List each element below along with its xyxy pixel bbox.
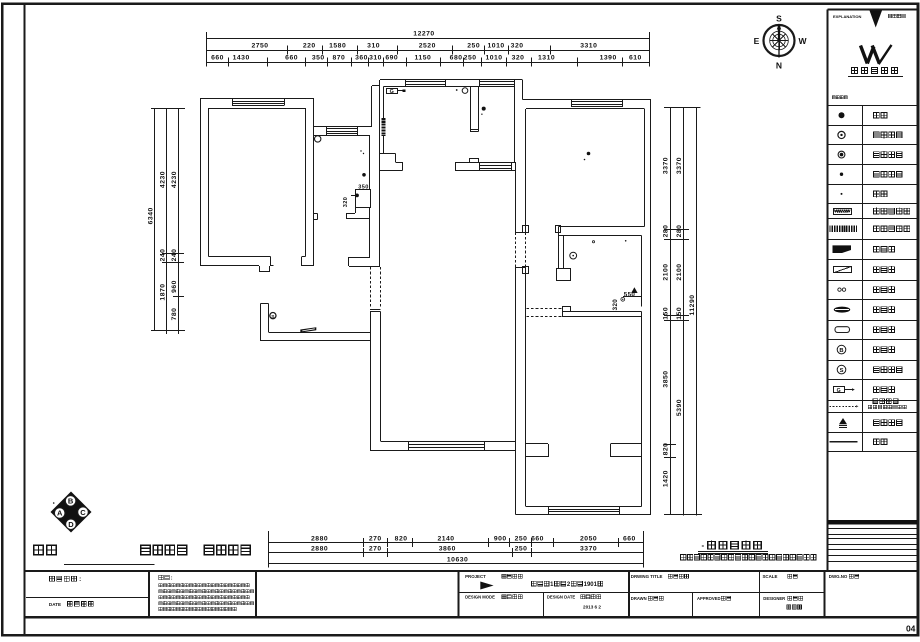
svg-text:3860: 3860 bbox=[439, 546, 456, 553]
svg-text:1010: 1010 bbox=[488, 43, 505, 50]
svg-text:870: 870 bbox=[332, 55, 345, 62]
svg-text:S: S bbox=[840, 368, 844, 374]
svg-text:250: 250 bbox=[464, 55, 477, 62]
svg-text:660: 660 bbox=[531, 535, 544, 542]
svg-text:280: 280 bbox=[676, 225, 683, 238]
svg-text:680: 680 bbox=[450, 55, 463, 62]
svg-text:DATE: DATE bbox=[49, 602, 61, 607]
svg-text:DWG.NO: DWG.NO bbox=[829, 574, 848, 579]
svg-text:1580: 1580 bbox=[329, 43, 346, 50]
svg-text:320: 320 bbox=[511, 43, 524, 50]
svg-text:2100: 2100 bbox=[676, 263, 683, 280]
svg-text:3310: 3310 bbox=[580, 43, 597, 50]
svg-text::: : bbox=[171, 575, 173, 581]
svg-text:280: 280 bbox=[662, 225, 669, 238]
svg-text:PROJECT: PROJECT bbox=[465, 574, 486, 579]
svg-text:3370: 3370 bbox=[662, 157, 669, 174]
svg-text:250: 250 bbox=[515, 535, 528, 542]
svg-text:250: 250 bbox=[467, 43, 480, 50]
svg-text:12270: 12270 bbox=[413, 31, 434, 38]
svg-text:1420: 1420 bbox=[662, 470, 669, 487]
svg-text:960: 960 bbox=[171, 280, 178, 293]
svg-text:2140: 2140 bbox=[437, 535, 454, 542]
svg-text:S: S bbox=[776, 14, 782, 24]
svg-text:900: 900 bbox=[494, 535, 507, 542]
svg-text:-: - bbox=[702, 541, 705, 550]
svg-text:11290: 11290 bbox=[689, 294, 696, 315]
svg-text:270: 270 bbox=[369, 535, 382, 542]
svg-text:B: B bbox=[839, 348, 843, 354]
svg-text:1390: 1390 bbox=[600, 55, 617, 62]
svg-text:DESIGN MODE: DESIGN MODE bbox=[465, 594, 495, 599]
svg-text:D: D bbox=[68, 520, 74, 529]
svg-text:2750: 2750 bbox=[251, 43, 268, 50]
svg-text:660: 660 bbox=[623, 535, 636, 542]
svg-text:610: 610 bbox=[629, 55, 642, 62]
svg-text:820: 820 bbox=[662, 443, 669, 456]
svg-text:310: 310 bbox=[369, 55, 382, 62]
svg-text:1901: 1901 bbox=[584, 582, 598, 588]
svg-text:A: A bbox=[57, 509, 63, 518]
svg-text:360: 360 bbox=[355, 55, 368, 62]
svg-text:310: 310 bbox=[367, 43, 380, 50]
svg-text:350: 350 bbox=[358, 184, 369, 190]
svg-text:G: G bbox=[837, 388, 841, 394]
svg-text:320: 320 bbox=[512, 55, 525, 62]
svg-text:DRAWN: DRAWN bbox=[631, 596, 647, 601]
svg-text:660: 660 bbox=[285, 55, 298, 62]
svg-text:320: 320 bbox=[612, 299, 619, 311]
svg-text:5390: 5390 bbox=[676, 399, 683, 416]
svg-text:2100: 2100 bbox=[662, 263, 669, 280]
svg-text:DESIGNER: DESIGNER bbox=[763, 596, 785, 601]
svg-text:C: C bbox=[80, 508, 86, 517]
svg-text:270: 270 bbox=[369, 546, 382, 553]
svg-text:SCALE: SCALE bbox=[763, 574, 778, 579]
svg-text:660: 660 bbox=[211, 55, 224, 62]
svg-text:2050: 2050 bbox=[580, 535, 597, 542]
svg-text:B: B bbox=[68, 497, 74, 506]
svg-text:150: 150 bbox=[676, 307, 683, 320]
svg-text:DRWING TITLE: DRWING TITLE bbox=[631, 574, 663, 579]
svg-text:2880: 2880 bbox=[311, 535, 328, 542]
svg-text:3370: 3370 bbox=[676, 157, 683, 174]
svg-text:E: E bbox=[754, 36, 760, 46]
svg-text:10630: 10630 bbox=[447, 556, 468, 563]
svg-text:N: N bbox=[776, 61, 782, 71]
svg-text:6340: 6340 bbox=[148, 207, 155, 224]
svg-text:820: 820 bbox=[395, 535, 408, 542]
svg-text:250: 250 bbox=[515, 546, 528, 553]
svg-text:04: 04 bbox=[906, 623, 916, 633]
svg-text:G: G bbox=[390, 89, 394, 95]
svg-text:4230: 4230 bbox=[159, 171, 166, 188]
svg-text:690: 690 bbox=[385, 55, 398, 62]
svg-text:3370: 3370 bbox=[580, 546, 597, 553]
svg-text:240: 240 bbox=[171, 249, 178, 262]
svg-text:320: 320 bbox=[343, 197, 349, 208]
svg-text:350: 350 bbox=[312, 55, 325, 62]
svg-text:1150: 1150 bbox=[415, 55, 432, 62]
svg-text:2013 6 2: 2013 6 2 bbox=[583, 605, 601, 610]
svg-text:780: 780 bbox=[171, 308, 178, 321]
svg-text:4230: 4230 bbox=[171, 171, 178, 188]
svg-text:150: 150 bbox=[662, 307, 669, 320]
svg-text:1430: 1430 bbox=[233, 55, 250, 62]
svg-text:240: 240 bbox=[159, 249, 166, 262]
svg-text:1010: 1010 bbox=[485, 55, 502, 62]
svg-text:3850: 3850 bbox=[662, 370, 669, 387]
svg-text:1870: 1870 bbox=[159, 283, 166, 300]
svg-text:W: W bbox=[798, 36, 807, 46]
svg-text:EXPLANATION: EXPLANATION bbox=[833, 14, 861, 19]
svg-text:DESIGN DATE: DESIGN DATE bbox=[547, 594, 576, 599]
svg-text::: : bbox=[79, 576, 81, 583]
svg-text:APPROVED: APPROVED bbox=[697, 596, 721, 601]
svg-text:2880: 2880 bbox=[311, 546, 328, 553]
svg-text:1310: 1310 bbox=[538, 55, 555, 62]
svg-text:550: 550 bbox=[624, 291, 636, 298]
svg-text:2520: 2520 bbox=[419, 43, 436, 50]
svg-text:220: 220 bbox=[303, 43, 316, 50]
